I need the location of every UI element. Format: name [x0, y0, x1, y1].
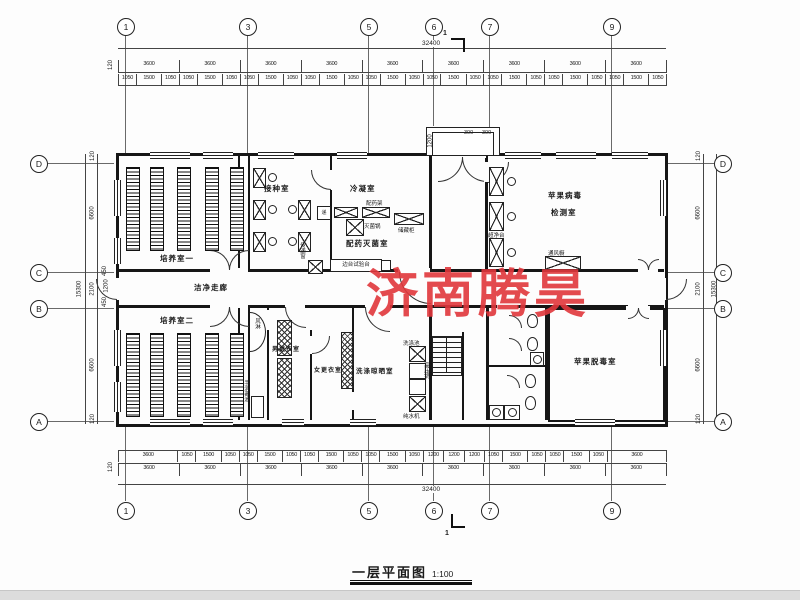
grid-line-5-top: [368, 36, 369, 153]
cultivation2-racks: [126, 333, 244, 417]
grid-bubble-label: C: [720, 268, 726, 278]
toilet-fixture: [527, 337, 538, 351]
dim-cell: 1050: [527, 451, 545, 462]
rack-column: [126, 167, 140, 251]
clean-bench: [489, 167, 504, 196]
grid-line-A-left: [48, 421, 114, 422]
rack-column: [177, 167, 191, 251]
cultivation1-racks: [126, 167, 244, 251]
dim-cell: 3600: [240, 464, 301, 476]
locker-cabinet: [277, 358, 292, 398]
right-dim-6600-top: 6600: [696, 206, 702, 219]
dim-cell: 1050: [161, 74, 179, 85]
grid-line-9-top: [611, 36, 612, 153]
dim-cell: 1050: [545, 451, 563, 462]
window: [660, 330, 667, 366]
top-bay-dim-row: 360036003600360036003600360036003600: [118, 60, 667, 73]
grid-bubble-7-bot: 7: [481, 502, 499, 520]
grid-line-A-right: [668, 421, 714, 422]
window: [150, 419, 190, 426]
window: [203, 152, 233, 159]
stool: [268, 205, 277, 214]
grid-bubble-label: A: [36, 417, 42, 427]
dim-cell: 1050: [240, 74, 258, 85]
dim-cell: 1050: [179, 74, 197, 85]
pure-water-machine: [409, 396, 426, 412]
rack-column: [177, 333, 191, 417]
dim-cell: 3600: [483, 464, 544, 476]
left-dim-2100: 2100: [90, 282, 96, 295]
section-mark-bottom: [451, 514, 465, 528]
drawing-title-text: 一层平面图: [352, 562, 427, 581]
drawing-title: 一层平面图 1:100: [352, 562, 453, 581]
dim-cell: 1050: [301, 74, 319, 85]
room-label-washing: 洗涤晾晒室: [356, 365, 394, 375]
dim-cell: 1050: [239, 451, 257, 462]
stool: [268, 173, 277, 182]
stool: [268, 237, 277, 246]
dim-cell: 1500: [380, 74, 405, 85]
dim-cell: 1050: [221, 451, 239, 462]
grid-bubble-1-bot: 1: [117, 502, 135, 520]
pass-window-label: 传递窗: [298, 242, 306, 259]
dim-cell: 1050: [344, 74, 362, 85]
washbasin: [504, 405, 520, 420]
dim-cell: 1050: [405, 451, 423, 462]
wash-sink: [409, 346, 426, 362]
grid-bubble-B-left: B: [30, 300, 48, 318]
grid-bubble-label: B: [720, 304, 726, 314]
dim-cell: 1050: [587, 74, 605, 85]
dim-cell: 1050: [544, 74, 562, 85]
top-overall-dim: 32400: [420, 40, 442, 47]
grid-line-D-left: [48, 163, 114, 164]
window: [337, 152, 367, 159]
left-overall-dim: 15300: [76, 281, 82, 298]
grid-bubble-label: B: [36, 304, 42, 314]
grid-bubble-label: 1: [124, 22, 129, 32]
locker-cabinet: [341, 332, 354, 389]
dim-cell: 1500: [197, 74, 222, 85]
washbasin: [530, 352, 544, 366]
grid-bubble-6-top: 6: [425, 18, 443, 36]
corridor-right-exit-arc: [666, 279, 687, 300]
dim-cell: 3600: [240, 60, 301, 72]
left-overall-dim-line: [85, 154, 86, 424]
rack-column: [150, 333, 164, 417]
dim-cell: 1050: [222, 74, 240, 85]
grid-bubble-1-top: 1: [117, 18, 135, 36]
window: [556, 152, 596, 159]
grid-line-1-top: [125, 36, 126, 153]
grid-bubble-7-top: 7: [481, 18, 499, 36]
window: [350, 419, 376, 426]
top-sub-dim-row: 1050150010501050150010501050150010501050…: [118, 74, 667, 86]
right-dim-120-bot: 120: [696, 414, 702, 424]
window: [114, 180, 121, 216]
room-label-cultivation2: 培养室二: [160, 315, 194, 326]
section-mark-label-bottom: 1: [445, 530, 449, 537]
grid-bubble-label: 3: [246, 22, 251, 32]
window: [575, 419, 615, 426]
dim-cell: 1500: [562, 74, 587, 85]
room-label-cultivation1: 培养室一: [160, 253, 194, 264]
pressure-pot: [409, 379, 426, 395]
dim-cell: 1050: [282, 451, 300, 462]
grid-bubble-C-right: C: [714, 264, 732, 282]
rack-column: [230, 333, 244, 417]
stair-arrow: [446, 338, 447, 372]
room-label-virus-test-2: 检测室: [551, 207, 577, 218]
dim-cell: 1200: [443, 451, 463, 462]
left-dim-6600-bot: 6600: [90, 358, 96, 371]
grid-line-3-top: [247, 36, 248, 153]
dim-cell: 1500: [195, 451, 220, 462]
grid-line-B-right: [668, 308, 714, 309]
title-underline-thick: [350, 582, 472, 585]
prep-bench: [334, 207, 358, 218]
section-mark-top: [451, 38, 465, 52]
window: [660, 180, 667, 216]
entrance-depth-dim: 1200: [428, 134, 434, 147]
right-dim-120-top: 120: [696, 151, 702, 161]
grid-bubble-9-top: 9: [603, 18, 621, 36]
dim-cell: 1050: [118, 74, 136, 85]
grid-bubble-D-left: D: [30, 155, 48, 173]
dim-cell: 1200: [423, 451, 443, 462]
grid-bubble-D-right: D: [714, 155, 732, 173]
bottom-overall-dim-line: [118, 484, 666, 485]
inoculation-bench: [253, 232, 266, 252]
stool: [288, 237, 297, 246]
rack-column: [150, 167, 164, 251]
rack-column: [126, 333, 140, 417]
grid-bubble-label: 9: [610, 506, 615, 516]
dim-cell: 1500: [258, 74, 283, 85]
grid-bubble-label: 3: [246, 506, 251, 516]
grid-bubble-3-top: 3: [239, 18, 257, 36]
dim-cell: 3600: [544, 60, 605, 72]
pressure-pot-label: 高压锅: [422, 362, 430, 379]
washing-left-gap: [351, 392, 355, 410]
dim-cell: 1050: [423, 74, 441, 85]
dim-cell: 1500: [502, 451, 527, 462]
dim-cell: 1050: [343, 451, 361, 462]
clean-bench: [489, 202, 504, 231]
men-changing-left-gap: [266, 310, 270, 330]
entrance-step-dim: 300: [464, 130, 473, 136]
dim-cell: 3600: [483, 60, 544, 72]
window: [114, 238, 121, 264]
stool: [507, 212, 516, 221]
drawing-scale: 1:100: [432, 569, 453, 579]
inoculation-bench: [253, 200, 266, 220]
grid-bubble-label: 6: [432, 22, 437, 32]
bottom-bay-dim-row: 360036003600360036003600360036003600: [118, 463, 667, 476]
dim-cell: 1050: [589, 451, 607, 462]
dim-cell: 3600: [605, 464, 666, 476]
grid-line-D-right: [668, 163, 714, 164]
dim-cell: 1050: [484, 451, 502, 462]
room-label-women-changing: 女更衣室: [314, 365, 342, 374]
entrance-step2-dim: 300: [482, 130, 491, 136]
dim-cell: 1500: [379, 451, 404, 462]
left-cluster-1200: 1200: [104, 279, 110, 292]
grid-bubble-label: 5: [367, 506, 372, 516]
room-label-detox: 苹果脱毒室: [574, 356, 617, 367]
dim-cell: 3600: [422, 60, 483, 72]
top-overall-dim-line: [118, 48, 666, 49]
grid-line-C-right: [668, 272, 714, 273]
grid-bubble-label: 7: [488, 506, 493, 516]
bottom-sub-dim-row: 3600105015001050105015001050105015001050…: [118, 450, 667, 462]
hand-wash-label: 手消毒池: [242, 380, 250, 402]
dim-cell: 1050: [362, 74, 380, 85]
wash-sink-label: 洗涤池: [403, 339, 420, 347]
dim-cell: 3600: [118, 464, 179, 476]
dim-cell: 3600: [544, 464, 605, 476]
dim-cell: 1500: [257, 451, 282, 462]
room-label-clean-corridor: 洁净走廊: [194, 282, 228, 293]
stool: [288, 205, 297, 214]
room-label-condensation: 冷凝室: [350, 183, 376, 194]
grid-bubble-5-bot: 5: [360, 502, 378, 520]
inoculation-bench: [298, 200, 311, 220]
dim-cell: 3600: [607, 451, 666, 462]
pass-box: 递: [317, 206, 331, 220]
dim-cell: 1050: [526, 74, 544, 85]
pure-water-label: 纯水机: [403, 412, 420, 420]
left-cluster-450-top: 450: [102, 266, 108, 276]
dim-cell: 1050: [466, 74, 484, 85]
prep-bench: [362, 207, 390, 218]
window: [258, 152, 294, 159]
rack-column: [230, 167, 244, 251]
medicine-rack-label: 配药架: [366, 199, 383, 207]
dim-cell: 1500: [318, 451, 343, 462]
dim-cell: 3600: [179, 60, 240, 72]
bottom-edge-dim: 120: [108, 462, 114, 472]
dim-cell: 1500: [136, 74, 161, 85]
dim-cell: 1050: [648, 74, 666, 85]
title-underline-thin: [350, 580, 472, 581]
grid-bubble-label: 5: [367, 22, 372, 32]
dim-cell: 1500: [501, 74, 526, 85]
toilet-fixture: [525, 374, 536, 388]
dim-cell: 3600: [301, 464, 362, 476]
grid-bubble-9-bot: 9: [603, 502, 621, 520]
dim-cell: 3600: [301, 60, 362, 72]
dim-cell: 1050: [405, 74, 423, 85]
dim-cell: 3600: [118, 60, 179, 72]
hand-wash-sink: [251, 396, 264, 418]
grid-bubble-label: 1: [124, 506, 129, 516]
room-label-inoculation: 接种室: [264, 183, 290, 194]
dim-cell: 3600: [118, 451, 177, 462]
stair: [432, 336, 462, 376]
sterilizer-label: 灭菌锅: [364, 222, 381, 230]
right-dim-2100: 2100: [696, 282, 702, 295]
rack-column: [205, 333, 219, 417]
pass-window: [308, 260, 323, 274]
dim-cell: 1500: [319, 74, 344, 85]
storage-cabinet: [394, 213, 424, 225]
grid-bubble-5-top: 5: [360, 18, 378, 36]
sterilizer: [346, 219, 364, 236]
dim-cell: 1050: [605, 74, 623, 85]
watermark: 济南腾昊: [366, 252, 590, 327]
dim-cell: 1500: [440, 74, 465, 85]
dim-cell: 3600: [179, 464, 240, 476]
stool: [507, 177, 516, 186]
window: [505, 152, 541, 159]
air-shower-label: 风淋: [253, 318, 261, 329]
dim-cell: 3600: [605, 60, 666, 72]
grid-bubble-label: D: [36, 159, 42, 169]
dim-cell: 1050: [283, 74, 301, 85]
window: [114, 330, 121, 366]
washbasin: [489, 405, 504, 420]
window: [612, 152, 648, 159]
bottom-overall-dim: 32400: [420, 486, 442, 493]
section-mark-label-top: 1: [443, 30, 447, 37]
floorplan-drawing: 1 3 5 6 7 9 1 3 5 6 7 9 D C B A D C B A …: [0, 0, 800, 600]
left-cluster-450-bot: 450: [102, 297, 108, 307]
window: [114, 382, 121, 412]
storage-cabinet-label: 储藏柜: [398, 226, 415, 234]
grid-bubble-B-right: B: [714, 300, 732, 318]
dim-cell: 1050: [361, 451, 379, 462]
window: [203, 419, 233, 426]
toilet-fixture: [525, 396, 536, 410]
room-label-virus-test-1: 苹果病毒: [548, 190, 582, 201]
dim-cell: 1500: [563, 451, 588, 462]
dim-cell: 3600: [362, 464, 423, 476]
grid-line-B-left: [48, 308, 114, 309]
right-dim-line: [703, 154, 704, 424]
grid-bubble-A-left: A: [30, 413, 48, 431]
dim-cell: 1500: [623, 74, 648, 85]
grid-bubble-3-bot: 3: [239, 502, 257, 520]
grid-bubble-label: A: [720, 417, 726, 427]
pass-box-label: 递: [321, 210, 326, 216]
dim-cell: 1050: [300, 451, 318, 462]
grid-bubble-A-right: A: [714, 413, 732, 431]
dim-cell: 1200: [464, 451, 484, 462]
rack-column: [205, 167, 219, 251]
left-dim-6600-top: 6600: [90, 206, 96, 219]
bottom-strip: [0, 590, 800, 600]
dim-cell: 3600: [362, 60, 423, 72]
grid-bubble-6-bot: 6: [425, 502, 443, 520]
room-label-men-changing: 男更衣室: [272, 344, 300, 353]
left-dim-120-top: 120: [90, 151, 96, 161]
top-edge-dim: 120: [108, 60, 114, 70]
grid-bubble-label: 6: [432, 506, 437, 516]
stair-right-wall: [462, 332, 464, 420]
dim-cell: 3600: [422, 464, 483, 476]
right-dim-6600-bot: 6600: [696, 358, 702, 371]
grid-bubble-C-left: C: [30, 264, 48, 282]
window: [282, 419, 304, 426]
clean-bench-label: 超净台: [488, 231, 505, 239]
dim-cell: 1050: [177, 451, 195, 462]
dim-cell: 1050: [483, 74, 501, 85]
grid-bubble-label: 9: [610, 22, 615, 32]
left-dim-120-bot: 120: [90, 414, 96, 424]
right-overall-dim: 15300: [711, 281, 717, 298]
grid-bubble-label: 7: [488, 22, 493, 32]
grid-bubble-label: C: [36, 268, 42, 278]
grid-bubble-label: D: [720, 159, 726, 169]
window: [150, 152, 190, 159]
room-label-prep-sterilize: 配药灭菌室: [346, 238, 389, 249]
